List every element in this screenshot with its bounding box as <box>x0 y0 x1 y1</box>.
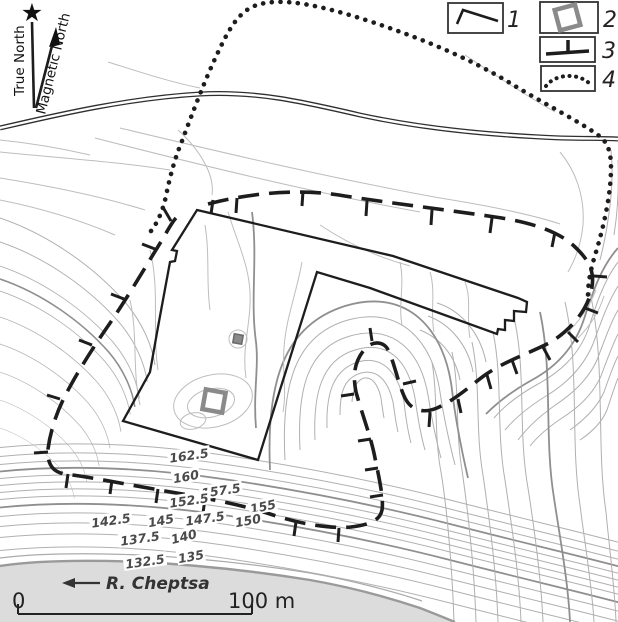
contour-labels: 162.5160157.5152.5155147.5150142.5145140… <box>89 445 279 572</box>
contour-label-value: 135 <box>177 547 206 566</box>
legend-symbol-pit-square <box>555 5 581 31</box>
contour-lines-hilltop <box>130 212 470 412</box>
road <box>0 93 618 139</box>
contour-lines-right-slope <box>494 150 618 446</box>
contour-lines-left-ravine <box>0 218 155 499</box>
legend-num-1: 1 <box>507 8 521 33</box>
pit-square-small <box>233 334 243 344</box>
contour-label-value: 160 <box>172 467 201 486</box>
legend-num-4: 4 <box>602 68 616 93</box>
contour-label: 162.5 <box>167 445 212 466</box>
scale-end-label: 100 m <box>228 589 295 613</box>
rampart-dashed-line <box>48 192 593 527</box>
north-arrows: ★ True North Magnetic North <box>12 0 74 116</box>
contour-label: 150 <box>233 511 263 531</box>
contour-label: 137.5 <box>118 528 163 549</box>
legend-box-4 <box>541 66 595 91</box>
contour-label-value: 140 <box>169 526 198 547</box>
topographic-site-plan: ★ True North Magnetic North 1 2 3 4 R. C… <box>0 0 618 622</box>
contour-label: 160 <box>171 467 201 487</box>
contour-label: 140 <box>168 526 199 547</box>
legend-num-3: 3 <box>602 39 616 64</box>
legend-box-1 <box>448 3 503 33</box>
true-north-label: True North <box>12 25 28 97</box>
scale-start-label: 0 <box>12 589 25 613</box>
map-svg: ★ True North Magnetic North 1 2 3 4 R. C… <box>0 0 618 622</box>
contour-label: 135 <box>176 547 206 567</box>
river-label: R. Cheptsa <box>106 574 210 594</box>
magnetic-north-label: Magnetic North <box>33 11 74 116</box>
contour-label-value: 150 <box>234 511 263 530</box>
legend-num-2: 2 <box>603 8 617 33</box>
contour-label-value: 137.5 <box>119 528 161 548</box>
true-north-arrow <box>32 22 34 108</box>
contour-label-value: 162.5 <box>168 445 210 465</box>
legend: 1 2 3 4 <box>448 2 617 93</box>
pit-square-large <box>202 389 225 412</box>
